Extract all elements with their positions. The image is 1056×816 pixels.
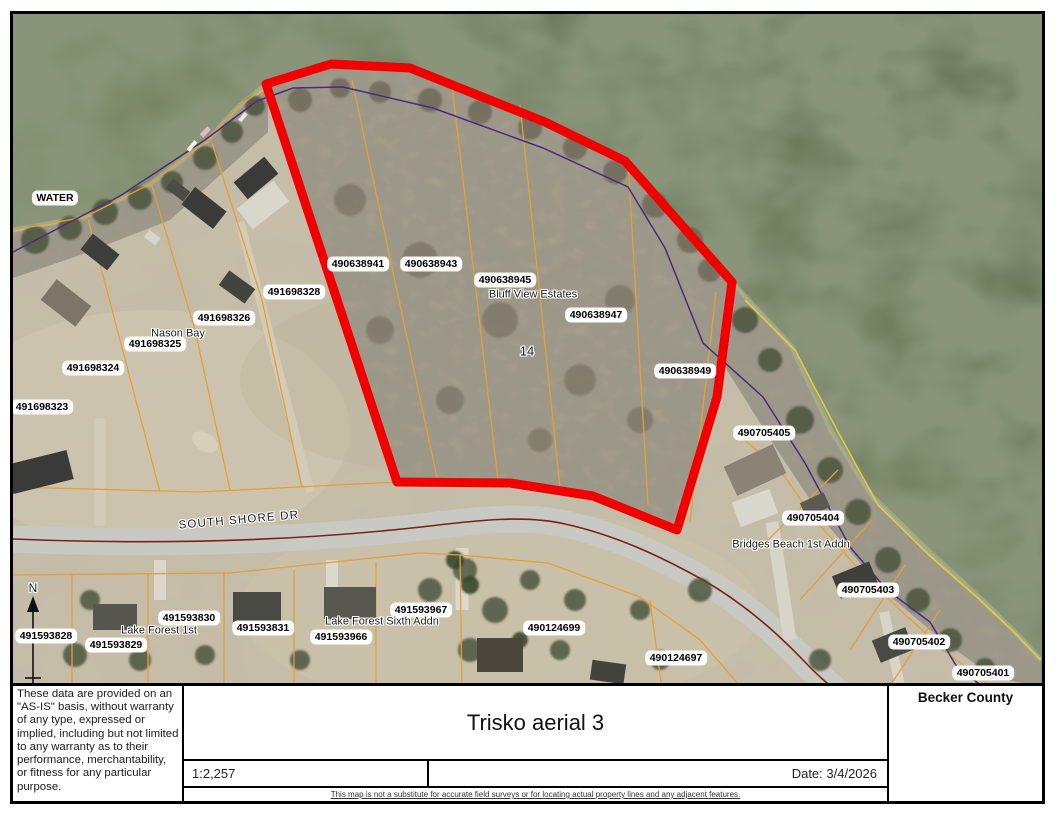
- map-scale: 1:2,257: [184, 761, 429, 786]
- county-name: Becker County: [887, 686, 1042, 801]
- fine-print: This map is not a substitute for accurat…: [184, 786, 887, 801]
- meta-row: 1:2,257 Date: 3/4/2026: [184, 759, 887, 786]
- disclaimer-text: These data are provided on an "AS-IS" ba…: [13, 686, 184, 801]
- page: { "title_block": { "disclaimer": "These …: [0, 0, 1056, 816]
- title-block-center: Trisko aerial 3 1:2,257 Date: 3/4/2026 T…: [184, 686, 887, 801]
- map-title: Trisko aerial 3: [467, 710, 604, 736]
- map-date: Date: 3/4/2026: [429, 761, 887, 786]
- title-block: These data are provided on an "AS-IS" ba…: [10, 683, 1045, 804]
- title-area: Trisko aerial 3: [184, 686, 887, 759]
